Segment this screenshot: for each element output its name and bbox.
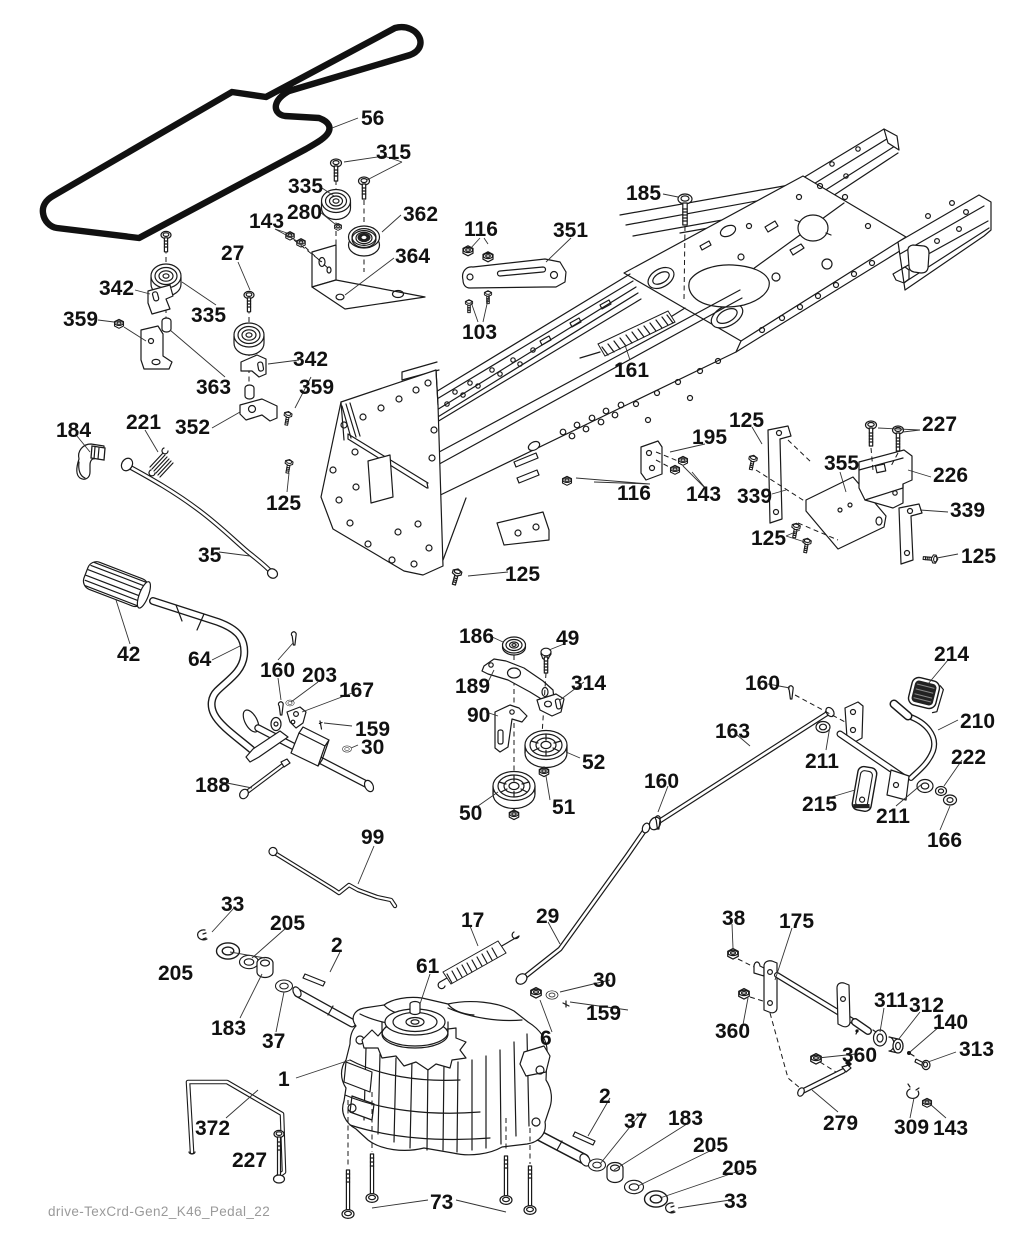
svg-text:280: 280	[287, 201, 322, 224]
svg-text:227: 227	[922, 413, 957, 436]
svg-text:drive-TexCrd-Gen2_K46_Pedal_22: drive-TexCrd-Gen2_K46_Pedal_22	[48, 1204, 270, 1219]
svg-text:163: 163	[715, 720, 750, 743]
svg-text:214: 214	[934, 643, 969, 666]
svg-text:125: 125	[961, 545, 996, 568]
svg-text:64: 64	[188, 648, 212, 671]
svg-text:183: 183	[668, 1107, 703, 1130]
svg-text:175: 175	[779, 910, 814, 933]
svg-text:185: 185	[626, 182, 661, 205]
svg-text:160: 160	[745, 672, 780, 695]
svg-text:186: 186	[459, 625, 494, 648]
svg-text:33: 33	[724, 1190, 747, 1213]
svg-text:37: 37	[262, 1030, 285, 1053]
svg-text:184: 184	[56, 419, 91, 442]
svg-text:211: 211	[805, 750, 839, 773]
svg-text:195: 195	[692, 426, 727, 449]
svg-text:160: 160	[260, 659, 295, 682]
svg-text:364: 364	[395, 245, 430, 268]
svg-text:73: 73	[430, 1191, 453, 1214]
svg-text:29: 29	[536, 905, 559, 928]
svg-text:309: 309	[894, 1116, 929, 1139]
svg-text:188: 188	[195, 774, 230, 797]
svg-text:363: 363	[196, 376, 231, 399]
svg-text:205: 205	[693, 1134, 728, 1157]
svg-text:314: 314	[571, 672, 606, 695]
svg-text:342: 342	[99, 277, 134, 300]
svg-text:56: 56	[361, 107, 384, 130]
svg-text:372: 372	[195, 1117, 230, 1140]
svg-text:2: 2	[331, 934, 343, 957]
svg-text:51: 51	[552, 796, 576, 819]
svg-text:143: 143	[686, 483, 721, 506]
svg-text:215: 215	[802, 793, 837, 816]
svg-text:50: 50	[459, 802, 482, 825]
svg-text:166: 166	[927, 829, 962, 852]
svg-text:315: 315	[376, 141, 411, 164]
svg-text:313: 313	[959, 1038, 994, 1061]
svg-text:103: 103	[462, 321, 497, 344]
svg-text:159: 159	[586, 1002, 621, 1025]
svg-text:227: 227	[232, 1149, 267, 1172]
svg-text:205: 205	[722, 1157, 757, 1180]
svg-text:203: 203	[302, 664, 337, 687]
svg-text:205: 205	[158, 962, 193, 985]
svg-text:359: 359	[63, 308, 98, 331]
svg-text:279: 279	[823, 1112, 858, 1135]
svg-text:339: 339	[950, 499, 985, 522]
svg-text:125: 125	[729, 409, 764, 432]
svg-text:27: 27	[221, 242, 244, 265]
svg-text:222: 222	[951, 746, 986, 769]
svg-text:362: 362	[403, 203, 438, 226]
svg-text:42: 42	[117, 643, 140, 666]
svg-text:355: 355	[824, 452, 859, 475]
svg-text:140: 140	[933, 1011, 968, 1034]
svg-text:49: 49	[556, 627, 579, 650]
svg-text:33: 33	[221, 893, 244, 916]
svg-text:167: 167	[339, 679, 374, 702]
svg-text:125: 125	[751, 527, 786, 550]
svg-text:339: 339	[737, 485, 772, 508]
svg-text:342: 342	[293, 348, 328, 371]
svg-text:143: 143	[933, 1117, 968, 1140]
svg-text:210: 210	[960, 710, 995, 733]
svg-text:226: 226	[933, 464, 968, 487]
svg-text:61: 61	[416, 955, 440, 978]
svg-text:30: 30	[593, 969, 616, 992]
svg-text:335: 335	[288, 175, 323, 198]
svg-text:143: 143	[249, 210, 284, 233]
svg-text:360: 360	[715, 1020, 750, 1043]
svg-text:221: 221	[126, 411, 161, 434]
svg-text:183: 183	[211, 1017, 246, 1040]
svg-text:30: 30	[361, 736, 384, 759]
svg-text:360: 360	[842, 1044, 877, 1067]
svg-text:359: 359	[299, 376, 334, 399]
svg-text:161: 161	[614, 359, 649, 382]
svg-text:17: 17	[461, 909, 484, 932]
svg-text:1: 1	[278, 1068, 290, 1091]
svg-text:125: 125	[266, 492, 301, 515]
svg-text:205: 205	[270, 912, 305, 935]
svg-text:52: 52	[582, 751, 605, 774]
svg-text:116: 116	[617, 482, 651, 505]
svg-text:35: 35	[198, 544, 222, 567]
svg-text:211: 211	[876, 805, 910, 828]
svg-text:90: 90	[467, 704, 490, 727]
svg-text:38: 38	[722, 907, 746, 930]
svg-text:99: 99	[361, 826, 384, 849]
svg-text:2: 2	[599, 1085, 611, 1108]
svg-text:6: 6	[540, 1027, 552, 1050]
svg-text:189: 189	[455, 675, 490, 698]
svg-text:352: 352	[175, 416, 210, 439]
svg-text:335: 335	[191, 304, 226, 327]
svg-text:351: 351	[553, 219, 588, 242]
svg-text:160: 160	[644, 770, 679, 793]
svg-text:37: 37	[624, 1110, 647, 1133]
svg-text:116: 116	[464, 218, 498, 241]
svg-text:311: 311	[874, 989, 908, 1012]
svg-text:125: 125	[505, 563, 540, 586]
